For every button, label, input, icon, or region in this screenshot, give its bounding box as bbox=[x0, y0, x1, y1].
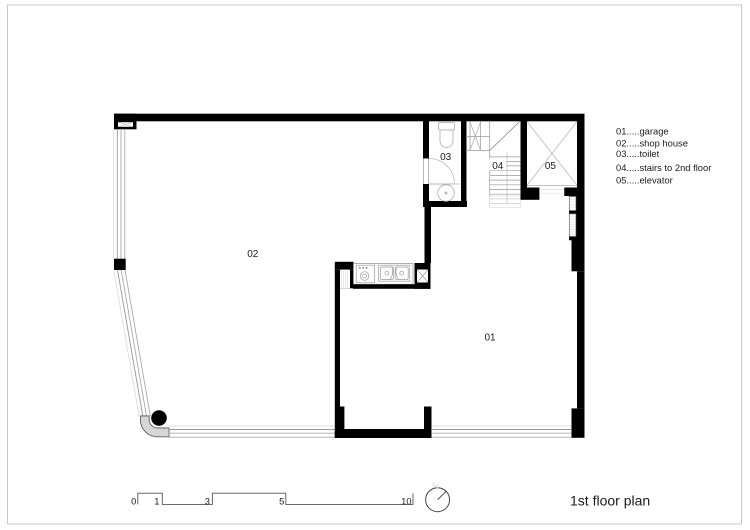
svg-text:01: 01 bbox=[484, 332, 496, 343]
svg-text:0: 0 bbox=[131, 495, 136, 506]
svg-text:03.....toilet: 03.....toilet bbox=[616, 148, 660, 159]
svg-text:05: 05 bbox=[545, 161, 557, 172]
svg-text:1: 1 bbox=[154, 495, 159, 506]
svg-text:02: 02 bbox=[247, 249, 259, 260]
svg-text:04.....stairs to 2nd floor: 04.....stairs to 2nd floor bbox=[616, 162, 711, 173]
svg-text:02.....shop house: 02.....shop house bbox=[616, 137, 688, 148]
svg-text:5: 5 bbox=[279, 495, 284, 506]
svg-text:05.....elevator: 05.....elevator bbox=[616, 174, 673, 185]
svg-text:03: 03 bbox=[440, 152, 452, 163]
svg-text:1st floor plan: 1st floor plan bbox=[570, 493, 650, 509]
svg-text:01.....garage: 01.....garage bbox=[616, 125, 669, 136]
svg-text:04: 04 bbox=[492, 161, 504, 172]
svg-text:10: 10 bbox=[401, 495, 411, 506]
svg-text:3: 3 bbox=[205, 495, 210, 506]
